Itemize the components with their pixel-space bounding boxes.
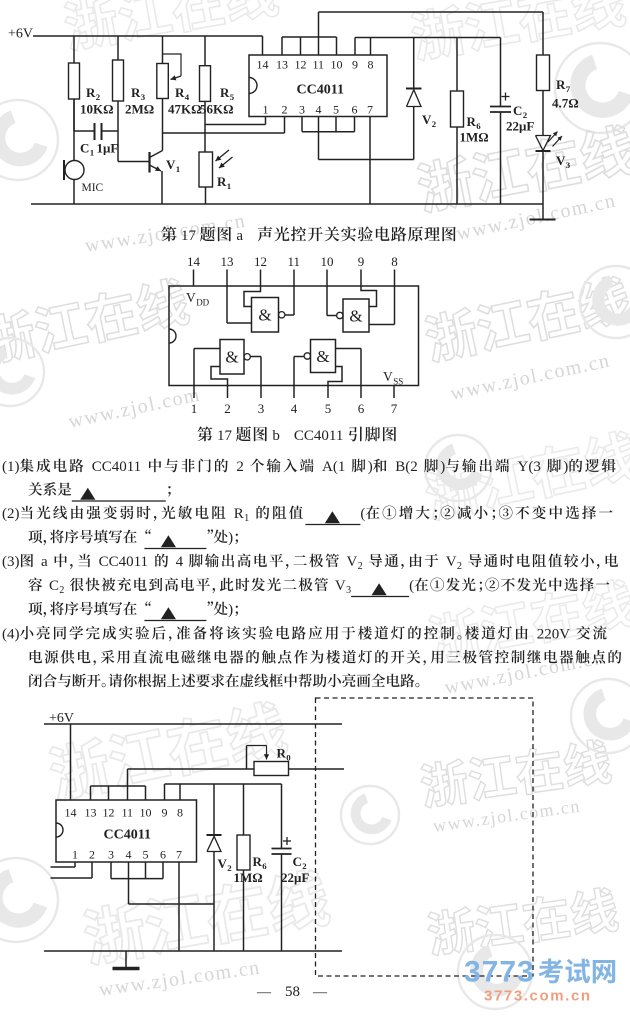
svg-text:V: V	[166, 157, 176, 172]
svg-text:(: (	[409, 578, 414, 594]
svg-text:7: 7	[391, 401, 398, 416]
svg-text:&: &	[316, 347, 329, 366]
svg-text:14: 14	[187, 254, 201, 269]
svg-text:R: R	[131, 85, 141, 100]
svg-text:+6V: +6V	[8, 27, 33, 42]
svg-text:4.7Ω: 4.7Ω	[552, 96, 579, 111]
svg-text:2: 2	[89, 848, 95, 862]
svg-text:4: 4	[291, 401, 298, 416]
svg-text:): )	[563, 459, 568, 475]
svg-text:2: 2	[282, 103, 288, 117]
svg-text:MIC: MIC	[82, 182, 104, 194]
svg-text:&: &	[349, 306, 362, 325]
svg-text:R: R	[175, 85, 185, 100]
svg-text:2: 2	[457, 561, 462, 572]
svg-text:R: R	[253, 854, 263, 869]
svg-text:3: 3	[566, 160, 571, 170]
svg-text:CC4011: CC4011	[99, 554, 148, 570]
svg-text:R: R	[277, 746, 287, 761]
svg-text:www.zjol.com: www.zjol.com	[66, 383, 202, 432]
svg-text:—: —	[256, 985, 272, 1000]
svg-text:14: 14	[257, 58, 269, 72]
svg-text:C: C	[293, 854, 302, 869]
svg-text:22μF: 22μF	[506, 119, 534, 134]
svg-text:R: R	[220, 85, 230, 100]
svg-text:6: 6	[160, 848, 166, 862]
svg-text:10: 10	[321, 254, 334, 269]
svg-text:12: 12	[254, 254, 267, 269]
svg-text:2: 2	[358, 561, 363, 572]
svg-text:11: 11	[313, 58, 325, 72]
svg-text:CC4011: CC4011	[92, 459, 141, 475]
svg-text:(: (	[360, 506, 365, 522]
svg-text:9: 9	[162, 806, 168, 820]
svg-text:V: V	[335, 578, 346, 594]
svg-text:1: 1	[90, 148, 94, 158]
svg-text:2: 2	[236, 459, 244, 475]
svg-text:58: 58	[285, 984, 300, 1000]
svg-text:V: V	[446, 554, 457, 570]
svg-text:R: R	[234, 506, 244, 522]
svg-text:www.zjol.com.cn: www.zjol.com.cn	[454, 190, 618, 245]
svg-text:): )	[228, 530, 233, 546]
svg-text:CC4011: CC4011	[294, 428, 343, 444]
svg-text:47KΩ: 47KΩ	[168, 102, 202, 117]
svg-text:14: 14	[65, 806, 77, 820]
svg-text:8: 8	[391, 254, 398, 269]
svg-text:13: 13	[276, 58, 288, 72]
svg-text:—: —	[312, 985, 328, 1000]
svg-text:10K: 10K	[80, 102, 104, 117]
svg-text:12: 12	[295, 58, 307, 72]
svg-text:12: 12	[103, 806, 115, 820]
svg-text:B(2: B(2	[395, 459, 418, 475]
svg-text:7: 7	[176, 848, 182, 862]
svg-text:6: 6	[262, 861, 267, 871]
svg-text:22μF: 22μF	[281, 870, 309, 885]
svg-text:13: 13	[221, 254, 234, 269]
svg-text:V: V	[186, 290, 196, 305]
svg-text:3773: 3773	[464, 956, 535, 989]
svg-text:4: 4	[316, 103, 322, 117]
svg-text:11: 11	[288, 254, 301, 269]
svg-text:7: 7	[566, 84, 571, 94]
svg-text:R: R	[467, 114, 477, 129]
svg-text:11: 11	[122, 806, 134, 820]
svg-text:1MΩ: 1MΩ	[460, 130, 489, 145]
svg-text:V: V	[422, 112, 432, 127]
svg-text:b: b	[272, 428, 280, 444]
svg-text:(2): (2)	[2, 506, 20, 522]
svg-text:): )	[440, 459, 445, 475]
svg-text:6: 6	[352, 103, 358, 117]
svg-text:DD: DD	[196, 298, 209, 308]
svg-text:3773.com.cn: 3773.com.cn	[484, 988, 592, 1005]
svg-text:R: R	[556, 77, 566, 92]
svg-text:5: 5	[143, 848, 149, 862]
svg-text:(3): (3)	[2, 554, 20, 570]
svg-text:4: 4	[126, 848, 132, 862]
svg-text:10: 10	[331, 58, 343, 72]
svg-text:A(1: A(1	[322, 459, 345, 475]
svg-text:1: 1	[227, 181, 231, 191]
svg-text:): )	[368, 459, 373, 475]
svg-text:&: &	[225, 348, 238, 367]
svg-text:1: 1	[263, 103, 269, 117]
svg-text:C: C	[513, 103, 522, 118]
svg-text:1: 1	[244, 513, 249, 524]
svg-text:5: 5	[333, 103, 339, 117]
svg-text:9: 9	[358, 254, 365, 269]
svg-text:17: 17	[181, 228, 197, 244]
svg-text:a: a	[41, 554, 48, 570]
svg-text:9: 9	[352, 58, 358, 72]
svg-text:0: 0	[286, 753, 291, 763]
svg-text:6: 6	[358, 401, 365, 416]
svg-text:(4): (4)	[2, 626, 20, 642]
svg-text:Y(3: Y(3	[518, 459, 541, 475]
svg-text:C: C	[49, 578, 59, 594]
svg-text:4: 4	[176, 554, 184, 570]
svg-text:V: V	[383, 369, 393, 384]
svg-text:(1): (1)	[2, 459, 20, 475]
svg-text:10: 10	[140, 806, 152, 820]
svg-text:V: V	[556, 153, 566, 168]
svg-text:1: 1	[72, 848, 78, 862]
svg-text:&: &	[258, 306, 271, 325]
svg-text:1: 1	[191, 401, 198, 416]
svg-text:8: 8	[368, 58, 374, 72]
svg-text:7: 7	[367, 103, 373, 117]
svg-text:2: 2	[224, 401, 231, 416]
svg-text:R: R	[86, 85, 96, 100]
svg-text:2MΩ: 2MΩ	[125, 102, 154, 117]
svg-text:8: 8	[177, 806, 183, 820]
svg-text:1μF: 1μF	[97, 141, 119, 156]
svg-text:3: 3	[108, 848, 114, 862]
svg-text:2: 2	[432, 119, 437, 129]
svg-text:www.zjol.com.cn: www.zjol.com.cn	[83, 210, 247, 257]
svg-text:3: 3	[299, 103, 305, 117]
svg-text:www.zjol.com.cn: www.zjol.com.cn	[448, 350, 612, 405]
svg-text:a: a	[236, 228, 243, 244]
svg-text:1MΩ: 1MΩ	[234, 870, 263, 885]
svg-text:1: 1	[176, 164, 180, 174]
svg-text:3: 3	[346, 585, 351, 596]
svg-text:SS: SS	[393, 377, 403, 387]
svg-text:17: 17	[217, 428, 233, 444]
svg-text:CC4011: CC4011	[104, 828, 151, 843]
svg-text:): )	[228, 602, 233, 618]
svg-text:C: C	[80, 141, 89, 156]
svg-text:R: R	[217, 174, 227, 189]
svg-text:3: 3	[258, 401, 265, 416]
svg-text:V: V	[347, 554, 358, 570]
svg-text:13: 13	[85, 806, 97, 820]
svg-text:CC4011: CC4011	[297, 83, 344, 98]
svg-text:www.zjol.com.cn: www.zjol.com.cn	[98, 957, 262, 1001]
svg-text:5: 5	[325, 401, 332, 416]
svg-text:Ω: Ω	[103, 102, 113, 117]
svg-text:2: 2	[227, 863, 232, 873]
svg-text:V: V	[218, 856, 228, 871]
svg-text:220V: 220V	[537, 626, 571, 642]
svg-text:56KΩ: 56KΩ	[200, 102, 234, 117]
svg-text:2: 2	[59, 585, 64, 596]
